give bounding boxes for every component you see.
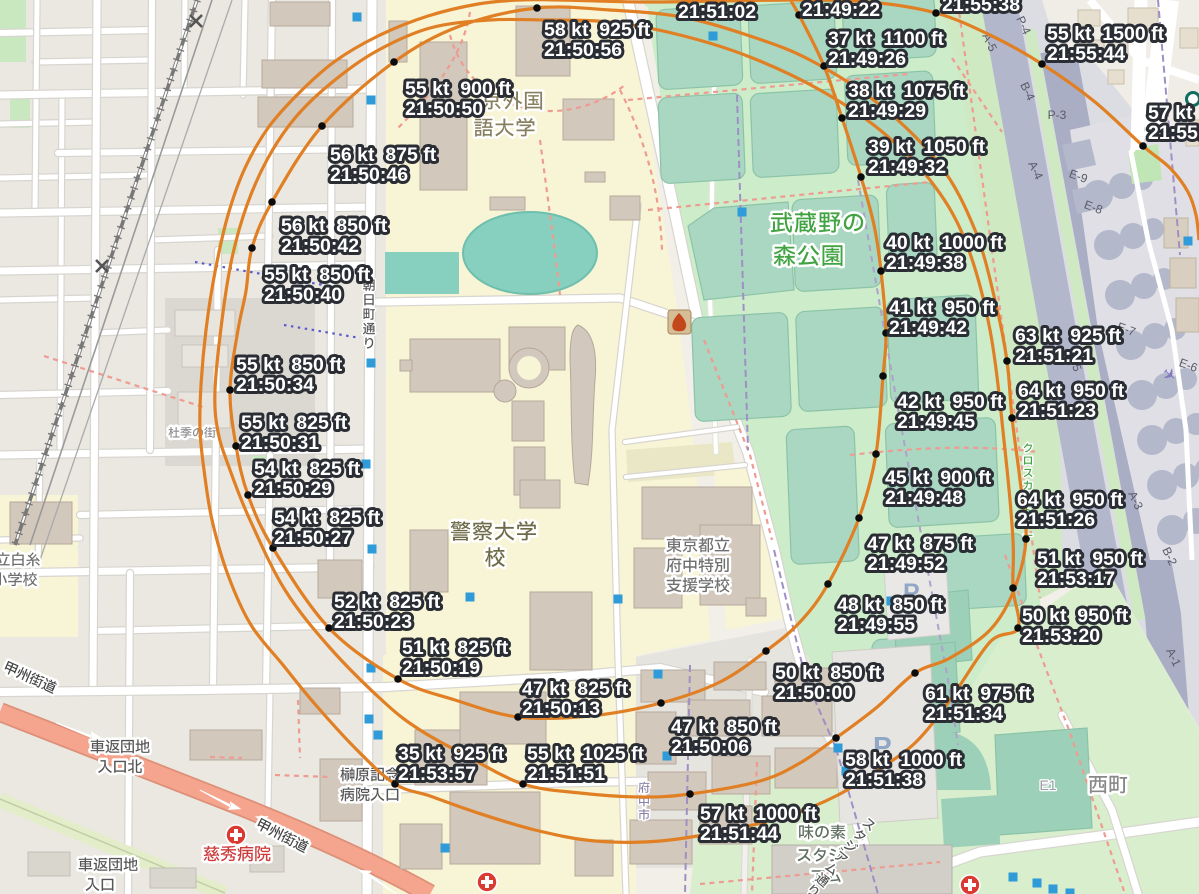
svg-text:47 kt 850 ft: 47 kt 850 ft [671, 716, 778, 738]
svg-text:21:49:22: 21:49:22 [802, 0, 880, 21]
svg-text:21:49:29: 21:49:29 [848, 100, 926, 122]
svg-text:47 kt 825 ft: 47 kt 825 ft [522, 678, 629, 700]
svg-text:61 kt 975 ft: 61 kt 975 ft [925, 683, 1032, 705]
svg-text:21:51:21: 21:51:21 [1015, 345, 1093, 367]
svg-text:48 kt 850 ft: 48 kt 850 ft [837, 594, 944, 616]
svg-text:64 kt 950 ft: 64 kt 950 ft [1018, 380, 1125, 402]
svg-text:58 kt 1000 ft: 58 kt 1000 ft [845, 749, 963, 771]
svg-text:21:51:51: 21:51:51 [527, 763, 605, 785]
svg-text:E1: E1 [1039, 777, 1056, 793]
svg-text:21:53:17: 21:53:17 [1037, 568, 1115, 590]
svg-text:21:51:26: 21:51:26 [1017, 509, 1095, 531]
svg-text:39 kt 1050 ft: 39 kt 1050 ft [868, 136, 986, 158]
svg-text:21:50:56: 21:50:56 [544, 39, 622, 61]
svg-text:21:53:57: 21:53:57 [398, 763, 476, 785]
svg-text:21:51:34: 21:51:34 [925, 703, 1003, 725]
svg-text:21:50:23: 21:50:23 [334, 611, 412, 633]
svg-text:21:49:55: 21:49:55 [837, 614, 915, 636]
svg-text:21:50:31: 21:50:31 [241, 432, 319, 454]
svg-text:38 kt 1075 ft: 38 kt 1075 ft [848, 80, 966, 102]
svg-text:55 kt 900 ft: 55 kt 900 ft [405, 78, 512, 100]
svg-text:54 kt 825 ft: 54 kt 825 ft [274, 507, 381, 529]
svg-text:55 kt 850 ft: 55 kt 850 ft [236, 354, 343, 376]
svg-text:21:55:44: 21:55:44 [1047, 43, 1125, 65]
svg-text:21:49:42: 21:49:42 [889, 317, 967, 339]
svg-text:21:50:00: 21:50:00 [775, 682, 853, 704]
svg-text:52 kt 825 ft: 52 kt 825 ft [334, 591, 441, 613]
svg-text:21:49:45: 21:49:45 [897, 411, 975, 433]
svg-text:50 kt 950 ft: 50 kt 950 ft [1022, 605, 1129, 627]
svg-text:21:50:13: 21:50:13 [522, 698, 600, 720]
svg-text:45 kt 900 ft: 45 kt 900 ft [885, 467, 992, 489]
svg-text:21:51:02: 21:51:02 [678, 1, 756, 23]
svg-text:21:50:29: 21:50:29 [254, 478, 332, 500]
svg-text:56 kt 875 ft: 56 kt 875 ft [330, 144, 437, 166]
svg-text:55 kt 850 ft: 55 kt 850 ft [264, 264, 371, 286]
svg-text:56 kt 850 ft: 56 kt 850 ft [281, 215, 388, 237]
svg-text:21:49:48: 21:49:48 [885, 487, 963, 509]
svg-text:57 kt 1000 ft: 57 kt 1000 ft [700, 803, 818, 825]
svg-text:21:49:38: 21:49:38 [886, 252, 964, 274]
svg-text:21:50:27: 21:50:27 [274, 527, 352, 549]
svg-text:64 kt 950 ft: 64 kt 950 ft [1017, 489, 1124, 511]
svg-text:57 kt 1: 57 kt 1 [1148, 102, 1199, 124]
svg-text:55 kt 825 ft: 55 kt 825 ft [241, 412, 348, 434]
svg-text:21:55:38: 21:55:38 [942, 0, 1020, 16]
svg-text:47 kt 875 ft: 47 kt 875 ft [867, 533, 974, 555]
svg-text:50 kt 850 ft: 50 kt 850 ft [775, 662, 882, 684]
svg-text:21:50:40: 21:50:40 [264, 284, 342, 306]
svg-text:21:50:42: 21:50:42 [281, 235, 359, 257]
svg-text:35 kt 925 ft: 35 kt 925 ft [398, 743, 505, 765]
svg-text:55 kt 1500 ft: 55 kt 1500 ft [1047, 23, 1165, 45]
svg-text:21:49:32: 21:49:32 [868, 156, 946, 178]
svg-text:54 kt 825 ft: 54 kt 825 ft [254, 458, 361, 480]
svg-text:21:49:26: 21:49:26 [828, 48, 906, 70]
svg-text:21:50:50: 21:50:50 [405, 98, 483, 120]
svg-text:51 kt 825 ft: 51 kt 825 ft [402, 637, 509, 659]
svg-text:51 kt 950 ft: 51 kt 950 ft [1037, 548, 1144, 570]
svg-text:21:51:44: 21:51:44 [700, 823, 778, 845]
svg-text:21:50:19: 21:50:19 [402, 657, 480, 679]
svg-text:21:55:5: 21:55:5 [1148, 122, 1199, 144]
svg-text:55 kt 1025 ft: 55 kt 1025 ft [527, 743, 645, 765]
svg-text:63 kt 925 ft: 63 kt 925 ft [1015, 325, 1122, 347]
svg-text:37 kt 1100 ft: 37 kt 1100 ft [828, 28, 944, 50]
svg-text:58 kt 925 ft: 58 kt 925 ft [544, 19, 651, 41]
svg-text:42 kt 950 ft: 42 kt 950 ft [897, 391, 1004, 413]
svg-text:21:51:38: 21:51:38 [845, 769, 923, 791]
svg-text:40 kt 1000 ft: 40 kt 1000 ft [886, 232, 1004, 254]
svg-text:41 kt 950 ft: 41 kt 950 ft [889, 297, 996, 319]
svg-text:21:53:20: 21:53:20 [1022, 625, 1100, 647]
svg-text:P-3: P-3 [1048, 108, 1067, 122]
svg-text:21:50:06: 21:50:06 [671, 736, 749, 758]
svg-text:21:50:46: 21:50:46 [330, 164, 408, 186]
svg-text:21:51:23: 21:51:23 [1018, 400, 1096, 422]
svg-text:21:49:52: 21:49:52 [867, 553, 945, 575]
svg-text:21:50:34: 21:50:34 [236, 374, 314, 396]
